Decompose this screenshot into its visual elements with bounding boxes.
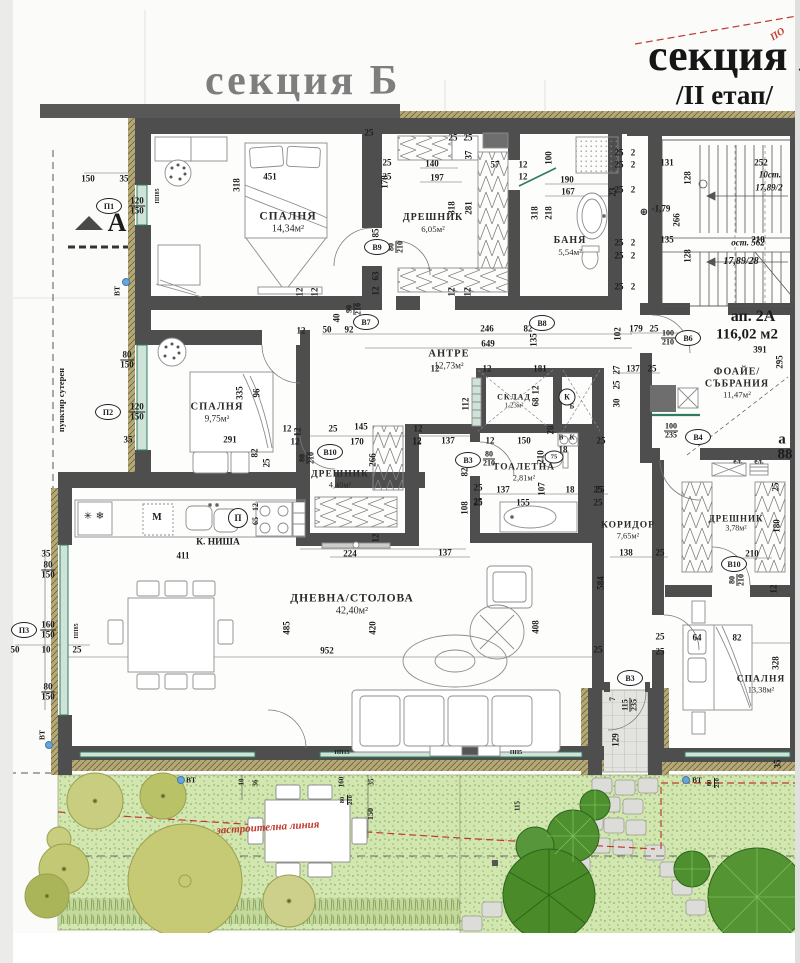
dim-label: 25 xyxy=(615,186,624,195)
room-label: СПАЛНЯ9,75м² xyxy=(191,402,244,425)
dim-label: 107 xyxy=(538,482,547,496)
dim-label: 25 xyxy=(615,252,624,261)
dim-label: 25 xyxy=(474,499,483,508)
level-icon: ⊕ xyxy=(640,208,648,218)
dim-label: 12 xyxy=(291,438,300,447)
dim-label: 128 xyxy=(684,171,693,185)
stairs-note: 17,89/28 xyxy=(723,257,758,267)
opening-marker-В8: В8 xyxy=(529,315,555,331)
dim-label: 28 xyxy=(547,426,556,435)
dim-label: 12 xyxy=(519,173,528,182)
room-label: ДРЕШНИК4,40м² xyxy=(311,470,369,491)
room-name: ФОАЙЕ/СЪБРАНИЯ xyxy=(705,366,769,389)
floor-plan-drawing xyxy=(0,0,800,963)
opening-marker-П2: П2 xyxy=(95,404,121,420)
opening-marker-П3: П3 xyxy=(11,622,37,638)
room-area: 1,23м² xyxy=(497,402,531,410)
dim-label: 35 xyxy=(42,550,51,559)
dim-label: ел. xyxy=(733,457,742,465)
dim-label: 36 xyxy=(253,780,260,787)
dim-label: 291 xyxy=(223,436,237,445)
room-area: 7,65м² xyxy=(601,532,655,542)
dim-label: 12 xyxy=(296,288,305,297)
dim-label: 102 xyxy=(614,327,623,341)
room-area: 9,75м² xyxy=(191,414,244,425)
dim-label: 170 xyxy=(350,438,364,447)
dim-label: 115 xyxy=(515,801,522,811)
dim-label: М xyxy=(152,513,161,523)
room-area: 2,81м² xyxy=(493,474,555,484)
dim-label: 140 xyxy=(425,160,439,169)
dim-label: 18 xyxy=(566,486,575,495)
dim-label: 25 xyxy=(365,129,374,138)
opening-marker-В10: В10 xyxy=(721,556,747,572)
dim-label: 179 xyxy=(629,325,643,334)
dim-label: 150 xyxy=(81,175,95,184)
room-name: ДРЕШНИК xyxy=(311,470,369,481)
dim-label: 2 xyxy=(631,161,636,170)
dim-label: 80210 xyxy=(729,574,746,586)
dim-label: 266 xyxy=(673,213,682,227)
dim-label: 25 xyxy=(594,646,603,655)
opening-marker-В7: В7 xyxy=(353,314,379,330)
dim-label: 295 xyxy=(776,355,785,369)
dim-label: 150 xyxy=(367,808,375,820)
opening-marker-П: П xyxy=(228,508,248,528)
dim-label: 649 xyxy=(481,340,495,349)
dim-label: 25 xyxy=(383,173,392,182)
room-name: ТОАЛЕТНА xyxy=(493,463,555,474)
dim-label: 35 xyxy=(120,175,129,184)
dim-label: 12 xyxy=(486,437,495,446)
dim-label: 335 xyxy=(236,386,245,400)
dim-label: 100210 xyxy=(661,330,675,347)
dim-label: 12 xyxy=(414,425,423,434)
opening-marker-В3: В3 xyxy=(455,452,481,468)
dim-label: 2 xyxy=(631,186,636,195)
dim-label: 266 xyxy=(369,453,378,467)
room-name: СПАЛНЯ xyxy=(191,402,244,414)
room-area: 12,73м² xyxy=(428,361,469,372)
dim-label: 100 xyxy=(545,151,554,165)
water-tap-dot xyxy=(682,776,690,784)
dim-label: 80210 xyxy=(707,778,721,788)
dim-label: 12 xyxy=(372,534,381,543)
dim-label: 35 xyxy=(369,779,376,786)
room-label: ФОАЙЕ/СЪБРАНИЯ11,47м² xyxy=(705,366,769,399)
dim-label: 12 xyxy=(413,438,422,447)
dim-label: 30 xyxy=(613,399,622,408)
room-label: АНТРЕ12,73м² xyxy=(428,349,469,372)
dim-label: 12 xyxy=(448,288,457,297)
dim-label: 420 xyxy=(369,621,378,635)
dim-label: 408 xyxy=(532,620,541,634)
dim-label: ПП5 xyxy=(510,750,522,756)
room-name: ДРЕШНИК xyxy=(403,212,463,224)
dim-label: 12 xyxy=(483,365,492,374)
dim-label: 150 xyxy=(517,437,531,446)
dim-label: 137 xyxy=(441,437,455,446)
dim-label: 90210 xyxy=(346,303,363,315)
dim-label: 25 xyxy=(474,484,483,493)
dim-label: ел. xyxy=(754,457,763,465)
room-area: 5,54м² xyxy=(554,247,587,257)
title-section-b: секция Б xyxy=(205,60,400,102)
dim-label: 12 xyxy=(311,288,320,297)
room-label: КОРИДОР7,65м² xyxy=(601,521,655,542)
dim-label: 218 xyxy=(545,206,554,220)
section-arrow xyxy=(75,216,103,230)
title-stage: /II етап/ xyxy=(676,82,773,109)
dim-label: 10 xyxy=(42,646,51,655)
dim-label: 63 xyxy=(372,272,381,281)
room-label: ДНЕВНА/СТОЛОВА42,40м² xyxy=(290,593,414,618)
dim-label: 80150 xyxy=(120,351,134,370)
stairs-note: ост. 562 xyxy=(731,239,765,248)
dim-label: 12 xyxy=(372,287,381,296)
dim-label: 37 xyxy=(465,151,474,160)
dim-label: 485 xyxy=(283,621,292,635)
dim-label: 328 xyxy=(772,656,781,670)
dim-label: 318 xyxy=(233,178,242,192)
note-dashed: пунктир сутерен xyxy=(57,368,66,432)
bottom-margin xyxy=(0,933,800,963)
dim-label: 224 xyxy=(343,550,357,559)
dim-label: 25 xyxy=(449,134,458,143)
dim-label: 25 xyxy=(329,425,338,434)
right-margin xyxy=(795,0,800,963)
dim-label: 128 xyxy=(684,249,693,263)
dim-label: 85 xyxy=(372,229,381,238)
dim-label: 12 xyxy=(464,288,473,297)
dim-label: 25 xyxy=(263,459,272,468)
apartment-id: ап. 2А xyxy=(731,309,776,325)
dim-label: 40 xyxy=(333,314,342,323)
dim-label: 115235 xyxy=(622,698,639,712)
dim-label: 65 xyxy=(252,517,260,525)
dim-label: 952 xyxy=(320,647,334,656)
dim-label: 35 xyxy=(774,760,783,769)
dim-label: 82 xyxy=(733,634,742,643)
opening-marker-П1: П1 xyxy=(96,198,122,214)
dim-label: 92 xyxy=(345,326,354,335)
room-label: БАНЯ5,54м² xyxy=(554,235,587,257)
dim-label: 25 xyxy=(597,437,606,446)
dim-label: 135 xyxy=(530,333,539,347)
dim-label: 82 xyxy=(461,468,470,477)
kitchen-niche: К. НИША xyxy=(196,538,240,548)
dim-label: 137 xyxy=(626,365,640,374)
dim-label: 2 xyxy=(631,239,636,248)
room-name: АНТРЕ xyxy=(428,349,469,361)
dim-label: 391 xyxy=(753,346,767,355)
dim-label: 82 xyxy=(251,449,260,458)
room-area: 11,47м² xyxy=(705,389,769,399)
dim-label: 252 xyxy=(754,159,768,168)
room-label: ДРЕШНИК6,05м² xyxy=(403,212,463,234)
dim-label: 25 xyxy=(656,633,665,642)
room-name: СПАЛНЯ xyxy=(259,211,316,224)
opening-marker-В9: В9 xyxy=(364,239,390,255)
dim-label: 50 xyxy=(11,646,20,655)
room-area: 3,78м² xyxy=(708,524,763,533)
dim-label: 96 xyxy=(253,389,262,398)
dim-label: 25 xyxy=(615,149,624,158)
room-name: КОРИДОР xyxy=(601,521,655,532)
dining-table xyxy=(128,598,214,672)
dim-label: ПП85 xyxy=(74,623,80,638)
dim-label: 35 xyxy=(124,436,133,445)
dim-label: 25 xyxy=(464,134,473,143)
fridge-icon: ❄ xyxy=(96,512,104,522)
room-area: 42,40м² xyxy=(290,606,414,618)
stairs-note: 17,89/2 xyxy=(755,184,782,193)
dim-label: 80210 xyxy=(340,795,354,805)
dim-label: 68 xyxy=(532,398,541,407)
dim-label: 167 xyxy=(561,188,575,197)
dim-label: 137 xyxy=(438,549,452,558)
room-name: ДРЕШНИК xyxy=(708,513,763,523)
dim-label: 80210 xyxy=(388,241,405,253)
dim-label: 108 xyxy=(461,501,470,515)
dim-label: ПП15 xyxy=(334,750,349,756)
hedge-strip xyxy=(58,898,460,924)
room-name: БАНЯ xyxy=(554,235,587,247)
dim-label: 27 xyxy=(613,366,622,375)
dim-label: 50 xyxy=(323,326,332,335)
dim-label: 181 xyxy=(533,365,547,374)
left-margin xyxy=(0,0,13,963)
fridge-icon: ✳ xyxy=(84,512,92,522)
opening-marker-К: К xyxy=(559,389,576,406)
dim-label: 281 xyxy=(465,201,474,215)
room-area: 4,40м² xyxy=(311,481,369,491)
dim-label: 12 xyxy=(294,428,303,437)
dim-label: В xyxy=(559,435,564,442)
dim-label: 2 xyxy=(631,149,636,158)
water-tap-dot xyxy=(45,741,53,749)
dim-label: 12 xyxy=(252,503,260,511)
dim-label: 25 xyxy=(613,381,622,390)
opening-marker-75: 75 xyxy=(545,451,564,464)
dim-label: 25 xyxy=(383,159,392,168)
dim-label: 25 xyxy=(648,365,657,374)
dim-label: 190 xyxy=(560,176,574,185)
dim-label: 25 xyxy=(594,499,603,508)
dim-label: 12 xyxy=(532,386,541,395)
dim-label: 25 xyxy=(656,648,665,657)
water-tap-dot xyxy=(122,278,130,286)
dim-label: 2 xyxy=(631,252,636,261)
corner-88: 88 xyxy=(778,448,793,463)
room-label: ТОАЛЕТНА2,81м² xyxy=(493,463,555,484)
dim-label: 80210 xyxy=(299,452,316,464)
dim-label: 137 xyxy=(496,486,510,495)
dim-label: 2 xyxy=(631,283,636,292)
dim-label: 120150 xyxy=(129,403,145,422)
room-area: 6,05м² xyxy=(403,224,463,234)
dim-label: ВТ xyxy=(692,776,702,784)
level-mark: -1,79 xyxy=(652,205,671,214)
dim-label: 10 xyxy=(239,779,246,786)
dim-label: 131 xyxy=(660,159,674,168)
dim-label: 25 xyxy=(73,646,82,655)
dim-label: 246 xyxy=(480,325,494,334)
dim-label: 25 xyxy=(656,549,665,558)
room-name: СПАЛНЯ xyxy=(737,675,785,686)
dim-label: 411 xyxy=(176,552,189,561)
dim-label: К xyxy=(569,435,574,442)
opening-marker-В10: В10 xyxy=(317,444,343,460)
dim-label: 451 xyxy=(263,173,277,182)
corner-a: а xyxy=(778,433,786,448)
room-label: СКЛАД1,23м² xyxy=(497,392,531,409)
dim-label: 80150 xyxy=(41,683,55,702)
dim-label: 160150 xyxy=(40,621,56,640)
opening-marker-В4: В4 xyxy=(685,429,711,445)
dim-label: 120150 xyxy=(129,197,145,216)
dim-label: 25 xyxy=(615,239,624,248)
water-tap-dot xyxy=(177,776,185,784)
dim-label: 145 xyxy=(354,423,368,432)
dim-label: 210 xyxy=(745,550,759,559)
dim-label: 80150 xyxy=(41,561,55,580)
dim-label: 100235 xyxy=(664,423,678,440)
garden-layer xyxy=(25,773,800,946)
dim-label: 25 xyxy=(650,325,659,334)
dim-label: 25 xyxy=(615,283,624,292)
dim-label: 12 xyxy=(519,161,528,170)
dim-label: 7 xyxy=(609,697,617,701)
room-label: ДРЕШНИК3,78м² xyxy=(708,513,763,532)
dim-label: ВТ xyxy=(186,776,196,784)
dim-label: 160 xyxy=(339,777,346,788)
dim-label: 12 xyxy=(297,327,306,336)
dim-label: 57 xyxy=(491,161,500,170)
apartment-area: 116,02 м2 xyxy=(716,328,778,343)
opening-marker-В6: В6 xyxy=(675,330,701,346)
room-area: 14,34м² xyxy=(259,224,316,236)
opening-marker-В3: В3 xyxy=(617,670,643,686)
dim-label: 64 xyxy=(693,634,702,643)
dim-label: 25 xyxy=(772,483,781,492)
dim-label: 25 xyxy=(615,161,624,170)
dim-label: ПП85 xyxy=(155,188,161,203)
dim-label: 135 xyxy=(660,236,674,245)
property-dashed-line xyxy=(13,150,53,773)
dim-label: 25 xyxy=(594,486,603,495)
room-name: СКЛАД xyxy=(497,392,531,401)
dim-label: ВТ xyxy=(38,730,46,740)
room-name: ДНЕВНА/СТОЛОВА xyxy=(290,593,414,606)
room-area: 13,38м² xyxy=(737,686,785,696)
dim-label: 112 xyxy=(462,397,471,410)
dim-label: 180 xyxy=(773,519,782,533)
dim-label: 584 xyxy=(597,576,606,590)
dim-label: ВТ xyxy=(113,286,121,296)
dim-label: 12 xyxy=(770,585,779,594)
dim-label: 318 xyxy=(531,206,540,220)
dim-label: 197 xyxy=(430,174,444,183)
room-label: СПАЛНЯ14,34м² xyxy=(259,211,316,236)
dim-label: 155 xyxy=(516,499,530,508)
floor-plan-page: секция Б секция А /II етап/ 150351201508… xyxy=(0,0,800,963)
dim-label: 138 xyxy=(619,549,633,558)
dim-label: 12 xyxy=(283,425,292,434)
room-label: СПАЛНЯ13,38м² xyxy=(737,675,785,696)
stairs-note: 10ст. xyxy=(759,171,781,180)
dim-label: 129 xyxy=(612,733,621,747)
